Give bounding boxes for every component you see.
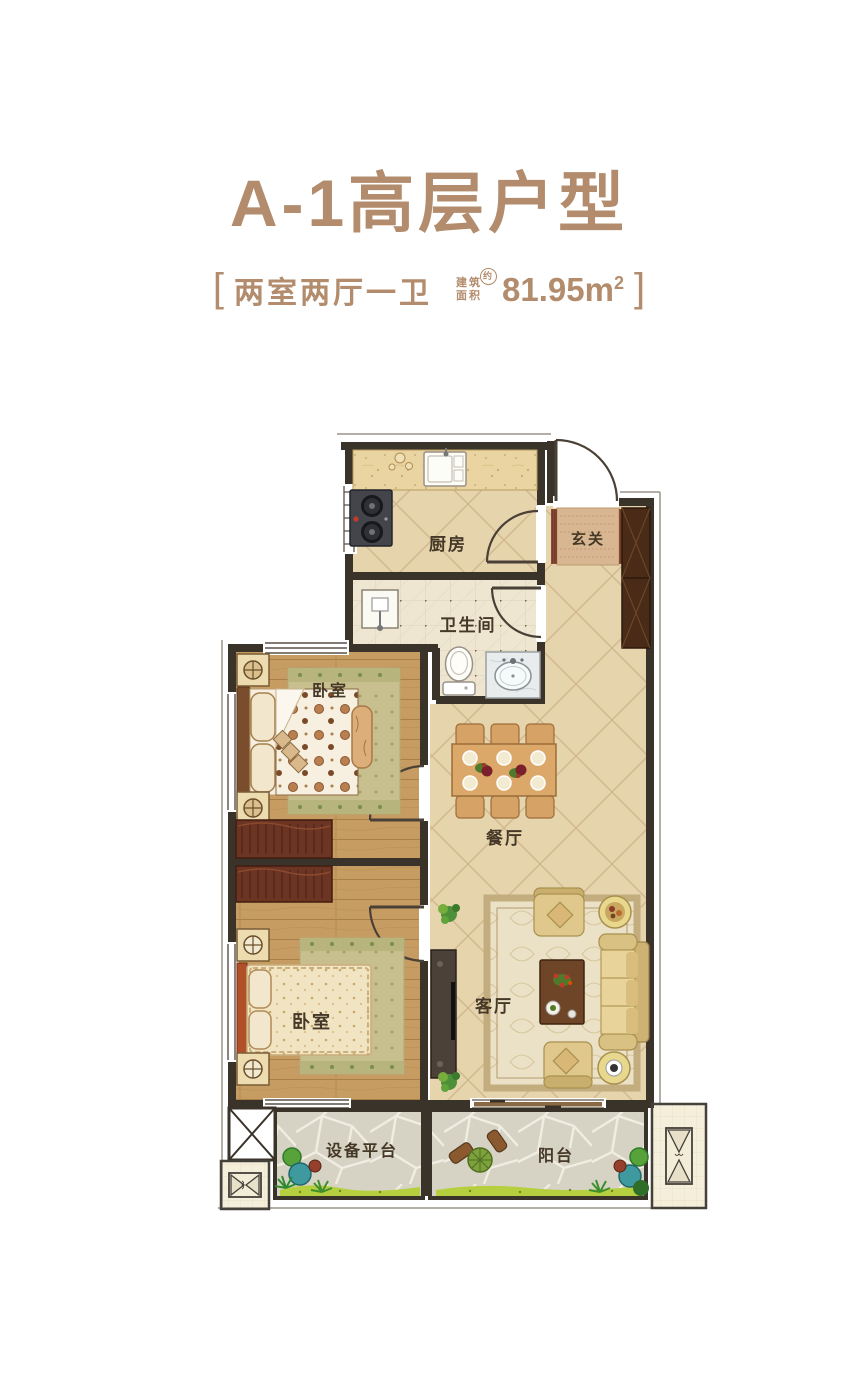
pillow (249, 970, 271, 1008)
nightstand (237, 929, 269, 961)
bed-top (237, 687, 358, 797)
sofa (599, 934, 649, 1050)
bedroom-top-label: 卧室 (312, 681, 348, 700)
bedroom-bottom-label: 卧室 (292, 1011, 332, 1032)
balcony-label: 阳台 (538, 1146, 574, 1165)
kitchen-dishes (395, 453, 405, 463)
dresser (236, 866, 332, 902)
headboard (237, 963, 247, 1057)
coffee-table (540, 960, 584, 1024)
vanity-sink (486, 652, 540, 698)
bathroom-label: 卫生间 (440, 615, 497, 635)
tv (451, 982, 455, 1040)
entry-door-swing (556, 440, 617, 501)
foyer-label: 玄关 (571, 530, 605, 548)
bath-doorway (536, 586, 546, 641)
entry-cabinet (622, 508, 650, 648)
nightstand (237, 1053, 269, 1085)
tv-cabinet (431, 950, 456, 1078)
entry-doorway (553, 496, 619, 508)
pillow (249, 1011, 271, 1049)
bedroom-top-doorway (419, 766, 429, 820)
bed-bottom (237, 963, 371, 1057)
stove (350, 490, 392, 546)
toilet (443, 647, 475, 695)
armchair-bottom (544, 1042, 592, 1088)
shower (362, 590, 398, 631)
side-table-top (599, 896, 631, 928)
pillow (251, 693, 275, 741)
equipment-platform-label: 设备平台 (326, 1141, 398, 1160)
armchair-top (534, 888, 584, 936)
kitchen-label: 厨房 (429, 534, 467, 554)
pillow (251, 744, 275, 792)
bedroom-bottom-doorway (419, 906, 429, 960)
bedroom-bench (352, 706, 372, 768)
shaft-cross-box (229, 1108, 275, 1160)
side-table-bottom (598, 1052, 630, 1084)
floorplan-drawing: 厨房 玄关 (0, 0, 858, 1400)
dresser (236, 820, 332, 858)
living-label: 客厅 (474, 996, 513, 1016)
nightstand (237, 792, 269, 824)
floorplan-page: A-1高层户型 [ 两室两厅一卫 建筑 面积 约 81.95m2 ] (0, 0, 858, 1400)
kitchen-doorway (536, 506, 546, 562)
nightstand (237, 654, 269, 686)
dining-label: 餐厅 (486, 828, 524, 848)
